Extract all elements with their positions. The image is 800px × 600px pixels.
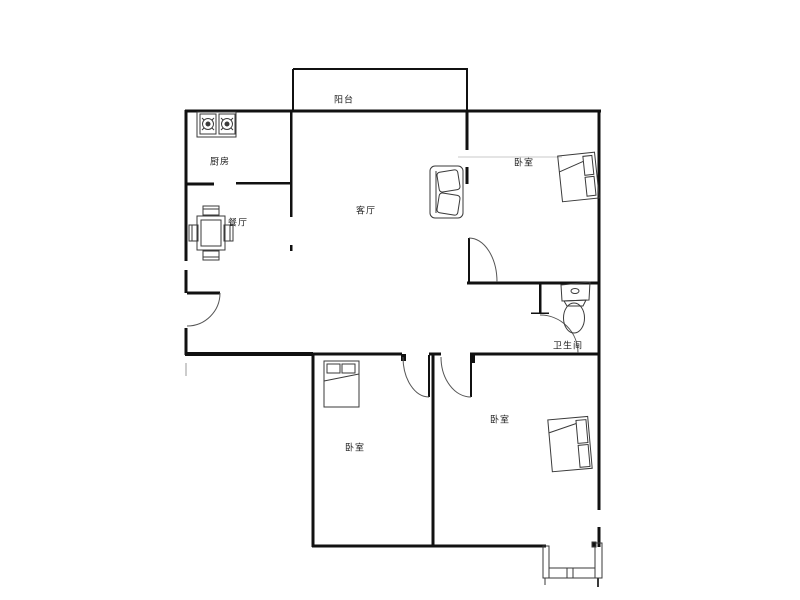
room-label-kitchen: 厨房	[210, 155, 230, 168]
balcony-walls	[293, 69, 468, 111]
stove-icon	[197, 112, 236, 137]
bed-right-icon	[548, 416, 592, 471]
floor-plan-drawing	[0, 0, 800, 600]
bed-middle-icon	[324, 361, 359, 407]
toilet-icon	[561, 282, 590, 333]
entrance-door	[187, 293, 220, 326]
bedroom-middle-door	[403, 355, 429, 397]
bedroom-right-door	[441, 355, 471, 397]
room-label-balcony: 阳台	[334, 93, 354, 106]
room-label-bathroom: 卫生间	[553, 339, 583, 352]
room-label-living: 客厅	[356, 204, 376, 217]
room-label-bedroom-top: 卧室	[514, 156, 534, 169]
dining-table-icon	[189, 206, 233, 260]
faint-lines	[186, 157, 562, 376]
floor-plan-canvas: 阳台 厨房 餐厅 客厅 卧室 卫生间 卧室 卧室	[0, 0, 800, 600]
room-label-dining: 餐厅	[228, 216, 248, 229]
walls	[185, 69, 601, 547]
bed-top-icon	[558, 152, 600, 202]
room-label-bedroom-middle: 卧室	[345, 441, 365, 454]
room-label-bedroom-right: 卧室	[490, 413, 510, 426]
doors	[187, 238, 578, 397]
bay-window-icon	[543, 542, 602, 587]
bedroom-top-door	[469, 238, 497, 282]
sofa-icon	[430, 166, 463, 218]
